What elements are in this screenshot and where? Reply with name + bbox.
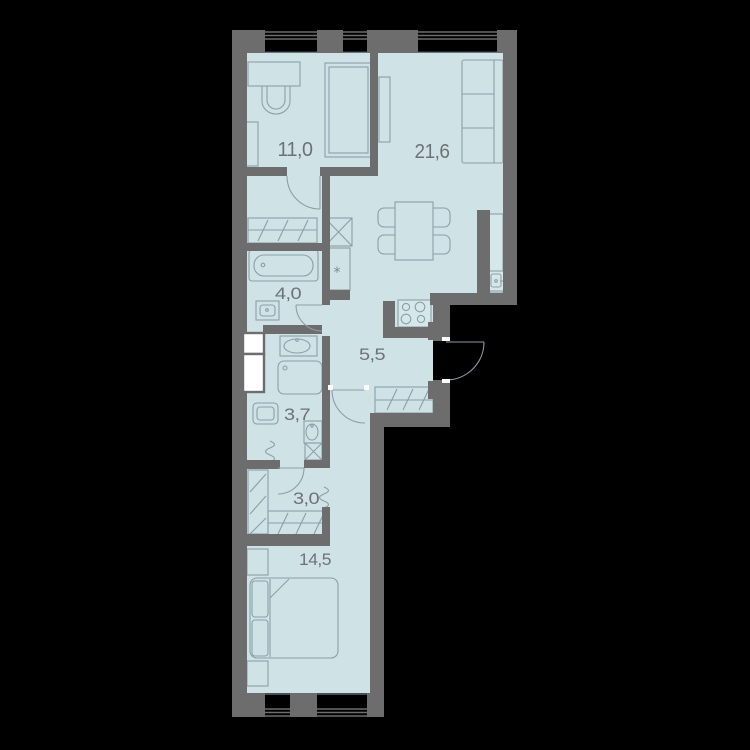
wall-11-bottom-l [247, 167, 287, 176]
room-label-11: 11,0 [278, 139, 313, 161]
wall-column-stub [322, 290, 350, 300]
door-frame-stub [364, 385, 369, 390]
shaft-white-2 [243, 354, 264, 392]
wall-11-bottom-r [320, 167, 378, 176]
wall-right-lower [370, 427, 384, 717]
window-opening [343, 30, 367, 53]
window-top-1 [265, 30, 317, 53]
window-opening [265, 30, 317, 53]
room-label-21: 21,6 [415, 141, 450, 163]
room-label-30: 3,0 [293, 489, 319, 508]
floor-plan-canvas: 11,0 21,6 4,0 5,5 3,7 3,0 14,5 * [0, 0, 750, 750]
wall-stove-bottom [383, 327, 443, 338]
door-frame-stub [442, 337, 450, 341]
window-opening [317, 693, 367, 717]
window-bottom-2 [317, 693, 367, 717]
door-frame-stub [442, 379, 450, 383]
wall-37-bottom [247, 460, 280, 469]
wall-niche-stub [477, 210, 490, 295]
room-label-40: 4,0 [275, 284, 301, 303]
window-opening [265, 693, 290, 717]
wall-bedroom-top [232, 534, 330, 546]
wall-kitchen-bottom [430, 293, 517, 305]
wall-bath-top [247, 243, 322, 251]
cabinet-star-symbol: * [334, 265, 341, 281]
door-jamb [428, 381, 450, 399]
shafts-layer [243, 333, 264, 392]
room-label-55: 5,5 [359, 345, 385, 364]
window-bottom-1 [265, 693, 290, 717]
window-opening [418, 30, 497, 53]
window-top-3 [418, 30, 497, 53]
wall-core-upper [322, 176, 330, 305]
wall-stove-stub [383, 301, 395, 329]
door-entrance [446, 342, 484, 380]
wall-core-lower [322, 336, 330, 460]
wall-room-divider [370, 53, 378, 168]
room-label-145: 14,5 [299, 550, 331, 569]
window-top-2 [343, 30, 367, 53]
floor-plan-svg: 11,0 21,6 4,0 5,5 3,7 3,0 14,5 * [0, 0, 750, 750]
wall-step [370, 413, 450, 427]
door-frame-stub [328, 385, 333, 390]
wall-37-bottom-stub [304, 460, 330, 468]
room-label-37: 3,7 [284, 405, 310, 424]
shaft-white-1 [243, 333, 264, 354]
wall-right-upper [503, 30, 517, 305]
